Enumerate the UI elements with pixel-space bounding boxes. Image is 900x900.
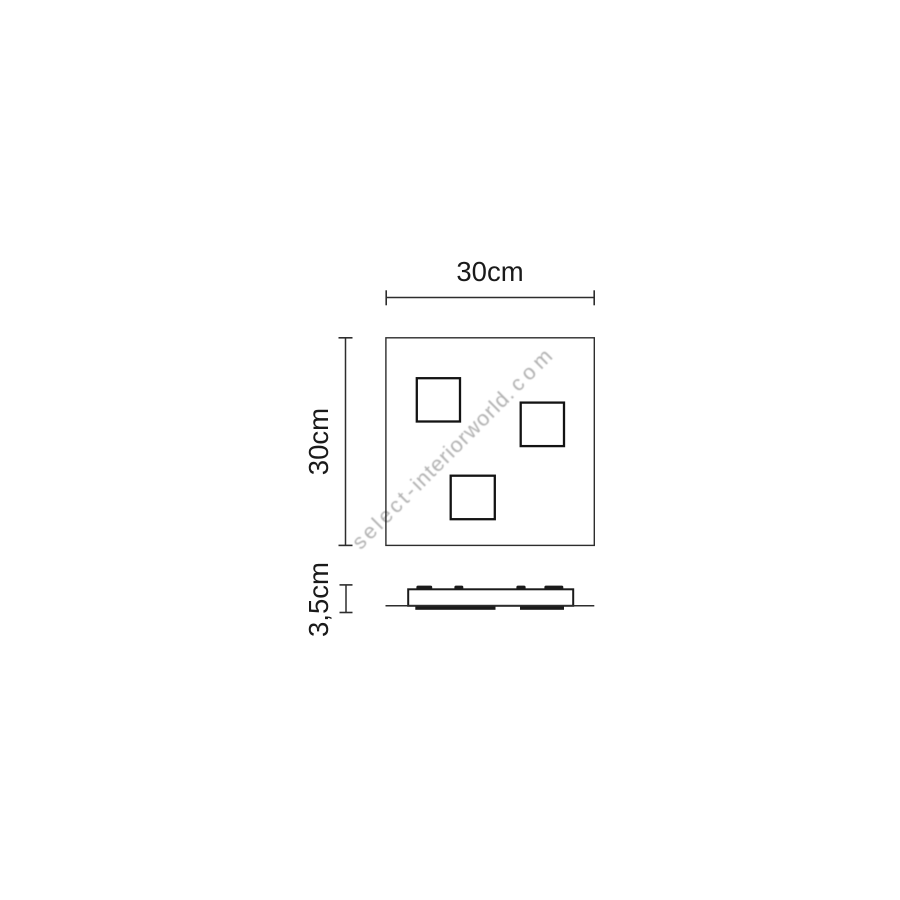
svg-text:select-interiorworld.com: select-interiorworld.com bbox=[347, 341, 560, 554]
svg-text:3,5cm: 3,5cm bbox=[303, 562, 334, 637]
svg-text:30cm: 30cm bbox=[456, 256, 523, 287]
svg-text:30cm: 30cm bbox=[303, 408, 334, 475]
